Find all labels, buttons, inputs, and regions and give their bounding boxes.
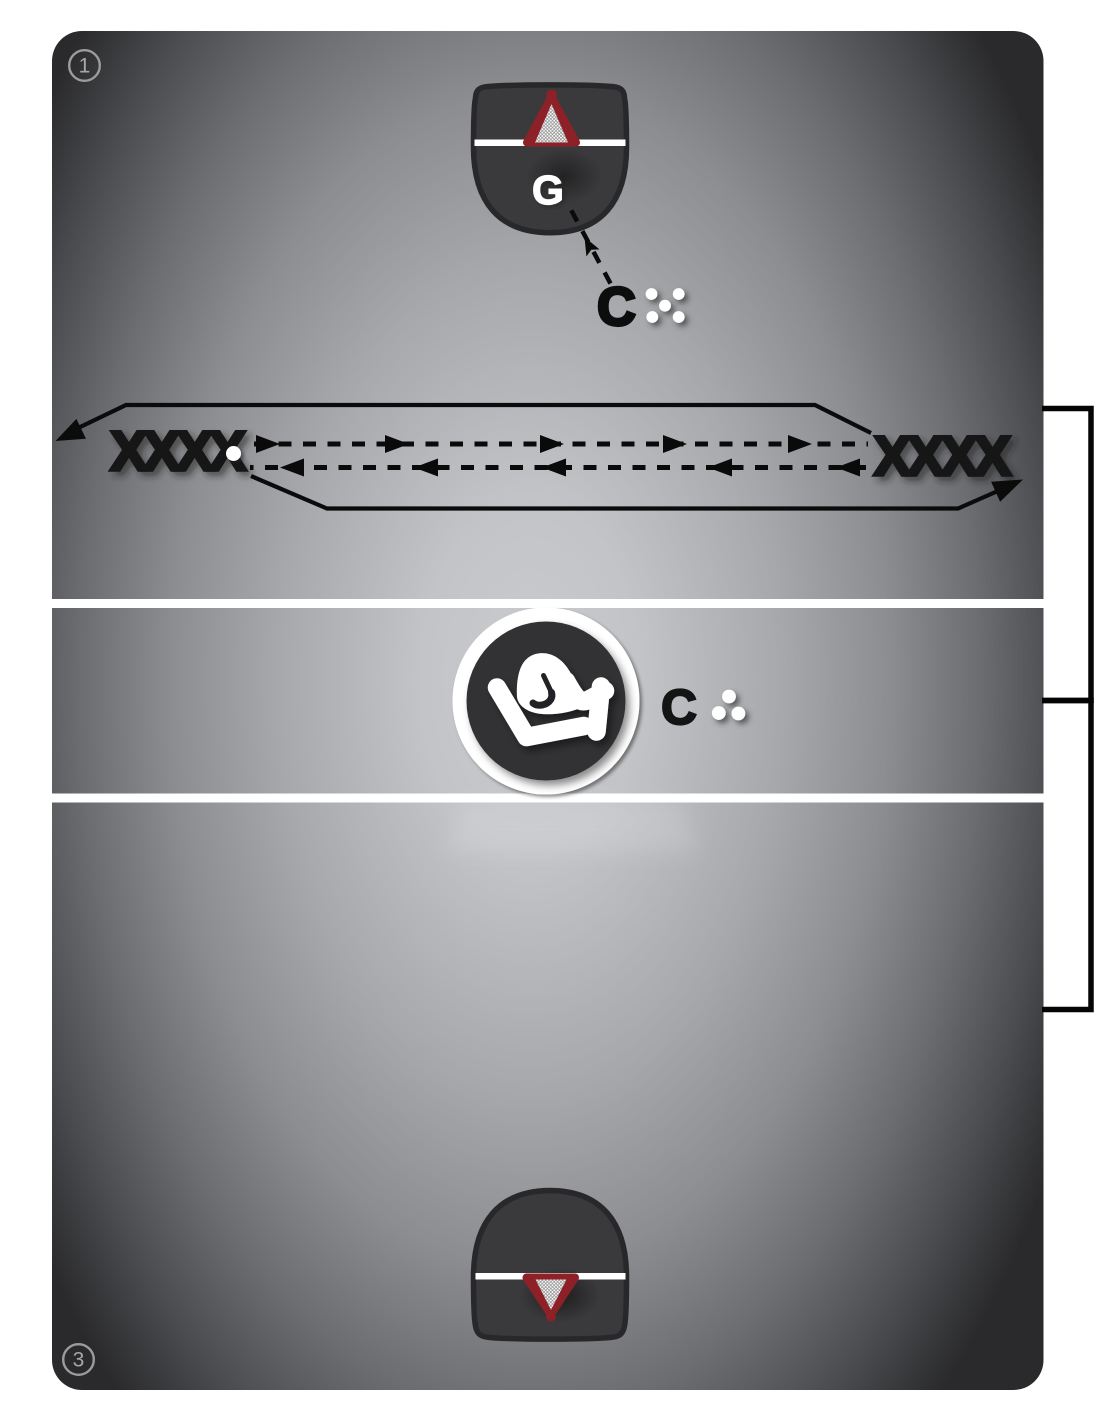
svg-text:1: 1 <box>79 55 91 78</box>
svg-text:XXXX: XXXX <box>110 419 246 482</box>
svg-text:XXXX: XXXX <box>874 424 1011 487</box>
svg-text:G: G <box>532 167 564 213</box>
svg-text:3: 3 <box>73 1349 85 1372</box>
svg-text:C: C <box>597 278 636 337</box>
svg-text:C: C <box>661 680 697 735</box>
